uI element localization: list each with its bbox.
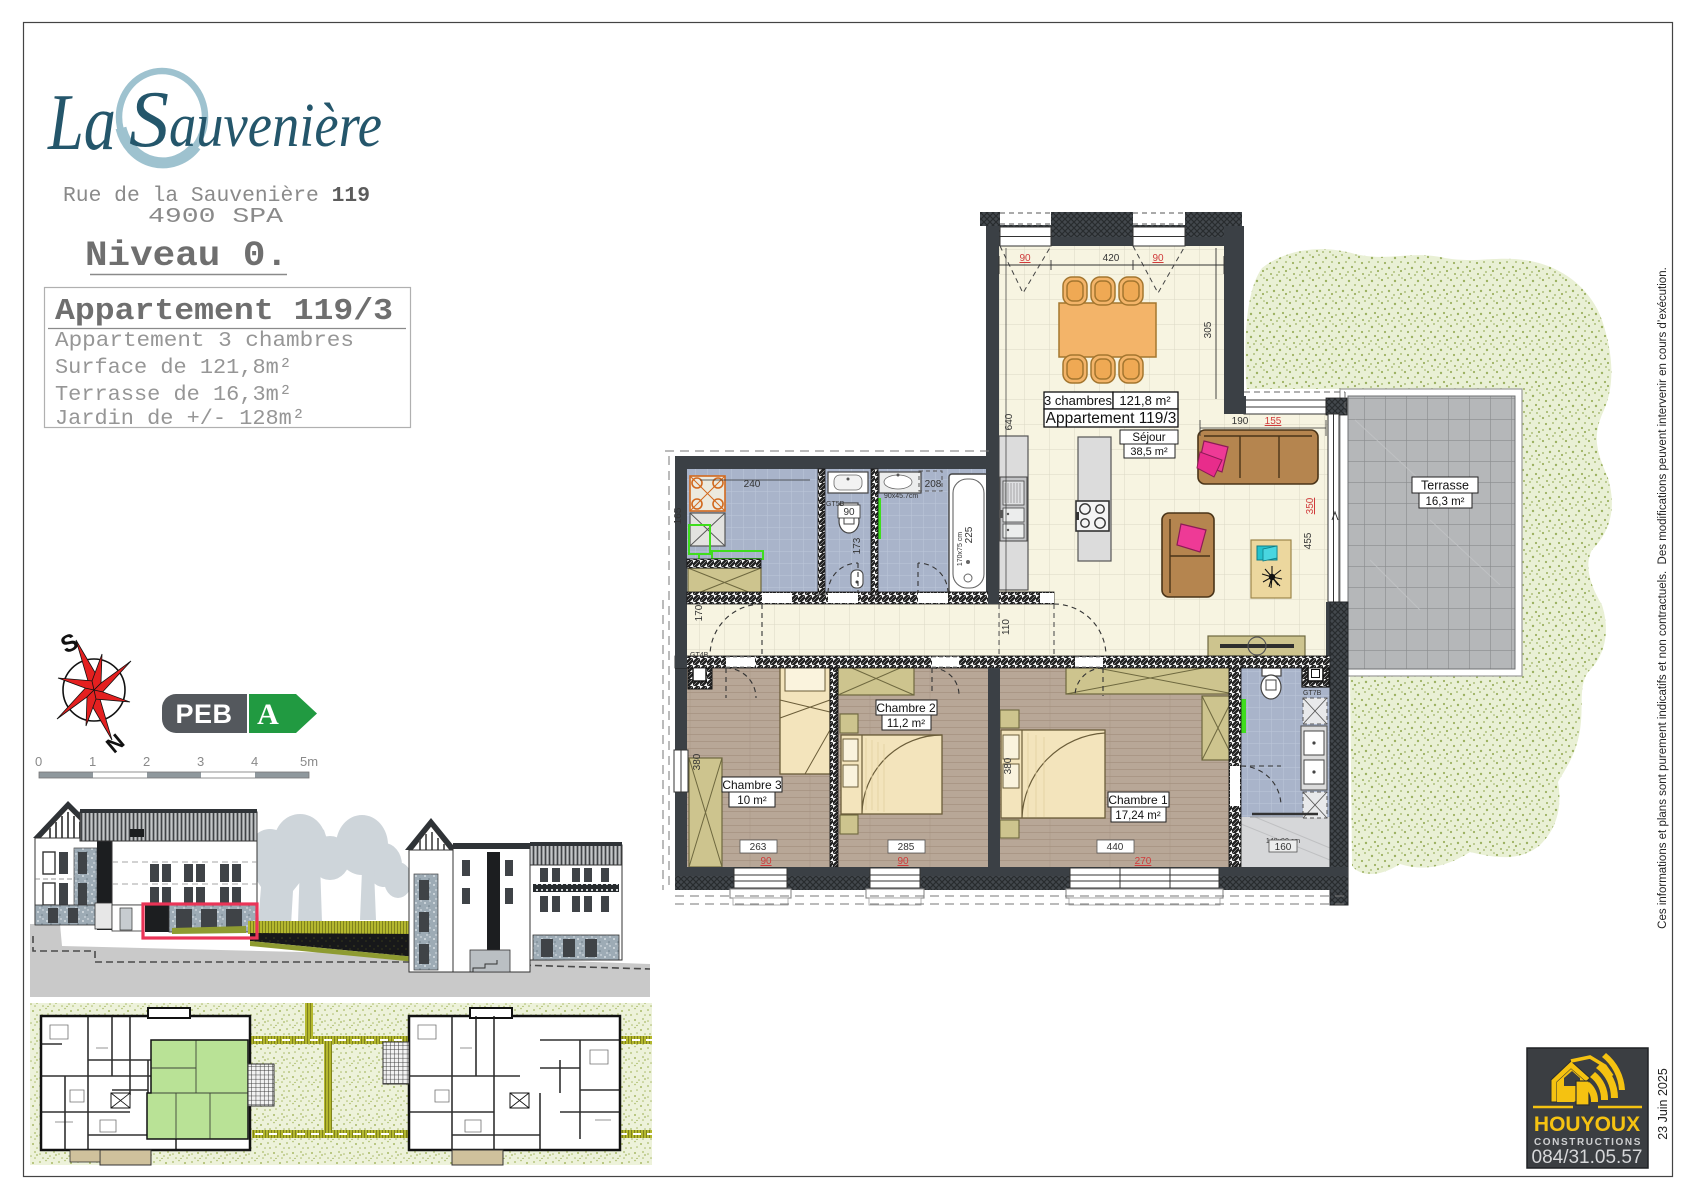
svg-text:5m: 5m (300, 754, 318, 769)
svg-text:2: 2 (143, 754, 150, 769)
svg-text:Niveau 0.: Niveau 0. (85, 236, 288, 276)
svg-text:Chambre 3: Chambre 3 (722, 778, 782, 792)
svg-text:Jardin de +/- 128m²: Jardin de +/- 128m² (55, 407, 305, 431)
svg-text:4: 4 (251, 754, 258, 769)
svg-text:Appartement 3 chambres: Appartement 3 chambres (55, 329, 354, 353)
svg-text:208: 208 (925, 479, 942, 490)
svg-text:380: 380 (1003, 757, 1014, 774)
svg-text:225: 225 (964, 526, 975, 543)
svg-text:Séjour: Séjour (1132, 432, 1165, 444)
svg-text:90: 90 (760, 856, 772, 867)
svg-text:240: 240 (744, 479, 761, 490)
svg-text:16,3 m²: 16,3 m² (1426, 496, 1465, 508)
svg-text:A: A (257, 698, 279, 731)
svg-text:170x75 cm: 170x75 cm (957, 532, 964, 566)
svg-text:0: 0 (35, 754, 42, 769)
svg-text:17,24 m²: 17,24 m² (1115, 810, 1161, 822)
svg-text:4900 SPA: 4900 SPA (148, 206, 284, 229)
svg-text:GT4B: GT4B (690, 652, 709, 659)
svg-text:1: 1 (89, 754, 96, 769)
svg-text:Terrasse de 16,3m²: Terrasse de 16,3m² (55, 383, 292, 407)
svg-text:Rue de la Sauvenière 119: Rue de la Sauvenière 119 (63, 185, 370, 208)
svg-text:285: 285 (898, 842, 915, 853)
svg-text:165: 165 (673, 507, 684, 524)
svg-text:90: 90 (1019, 253, 1031, 264)
svg-text:121,8 m²: 121,8 m² (1119, 393, 1171, 408)
svg-text:110: 110 (1001, 619, 1012, 635)
svg-text:270: 270 (1135, 856, 1152, 867)
svg-text:155: 155 (1265, 416, 1282, 427)
svg-text:173: 173 (852, 537, 863, 554)
svg-text:640: 640 (1004, 413, 1015, 430)
svg-text:3: 3 (197, 754, 204, 769)
svg-text:084/31.05.57: 084/31.05.57 (1532, 1147, 1643, 1168)
svg-text:Chambre 1: Chambre 1 (1108, 793, 1168, 807)
svg-text:440: 440 (1107, 842, 1124, 853)
svg-text:420: 420 (1103, 253, 1120, 264)
svg-text:PEB: PEB (175, 699, 232, 729)
svg-text:90: 90 (897, 856, 909, 867)
svg-text:38,5 m²: 38,5 m² (1130, 446, 1168, 458)
svg-text:160: 160 (1275, 842, 1292, 853)
svg-text:10 m²: 10 m² (737, 795, 767, 807)
svg-text:305: 305 (1203, 321, 1214, 338)
svg-text:Appartement 119/3: Appartement 119/3 (55, 294, 393, 329)
svg-text:455: 455 (1303, 532, 1314, 549)
svg-text:90x45.7cm: 90x45.7cm (884, 493, 918, 500)
svg-text:La: La (47, 79, 116, 167)
svg-text:3 chambres: 3 chambres (1044, 393, 1112, 408)
svg-text:Terrasse: Terrasse (1421, 479, 1469, 493)
svg-text:Chambre 2: Chambre 2 (876, 701, 936, 715)
svg-text:GT5B: GT5B (826, 501, 845, 508)
svg-text:HOUYOUX: HOUYOUX (1534, 1113, 1640, 1136)
svg-text:190: 190 (1232, 416, 1249, 427)
svg-text:23 Juin 2025: 23 Juin 2025 (1656, 1068, 1670, 1140)
svg-text:170: 170 (694, 604, 705, 621)
svg-text:GT7B: GT7B (1303, 690, 1322, 697)
svg-text:11,2 m²: 11,2 m² (887, 718, 925, 730)
svg-text:Ces informations et plans sont: Ces informations et plans sont purement … (1657, 267, 1669, 929)
svg-text:90: 90 (843, 507, 855, 518)
svg-text:Appartement 119/3: Appartement 119/3 (1046, 410, 1177, 427)
svg-text:350: 350 (1305, 497, 1316, 514)
svg-text:90: 90 (1152, 253, 1164, 264)
svg-text:Surface de 121,8m²: Surface de 121,8m² (55, 356, 292, 380)
svg-text:263: 263 (750, 842, 767, 853)
svg-text:380: 380 (692, 753, 703, 770)
